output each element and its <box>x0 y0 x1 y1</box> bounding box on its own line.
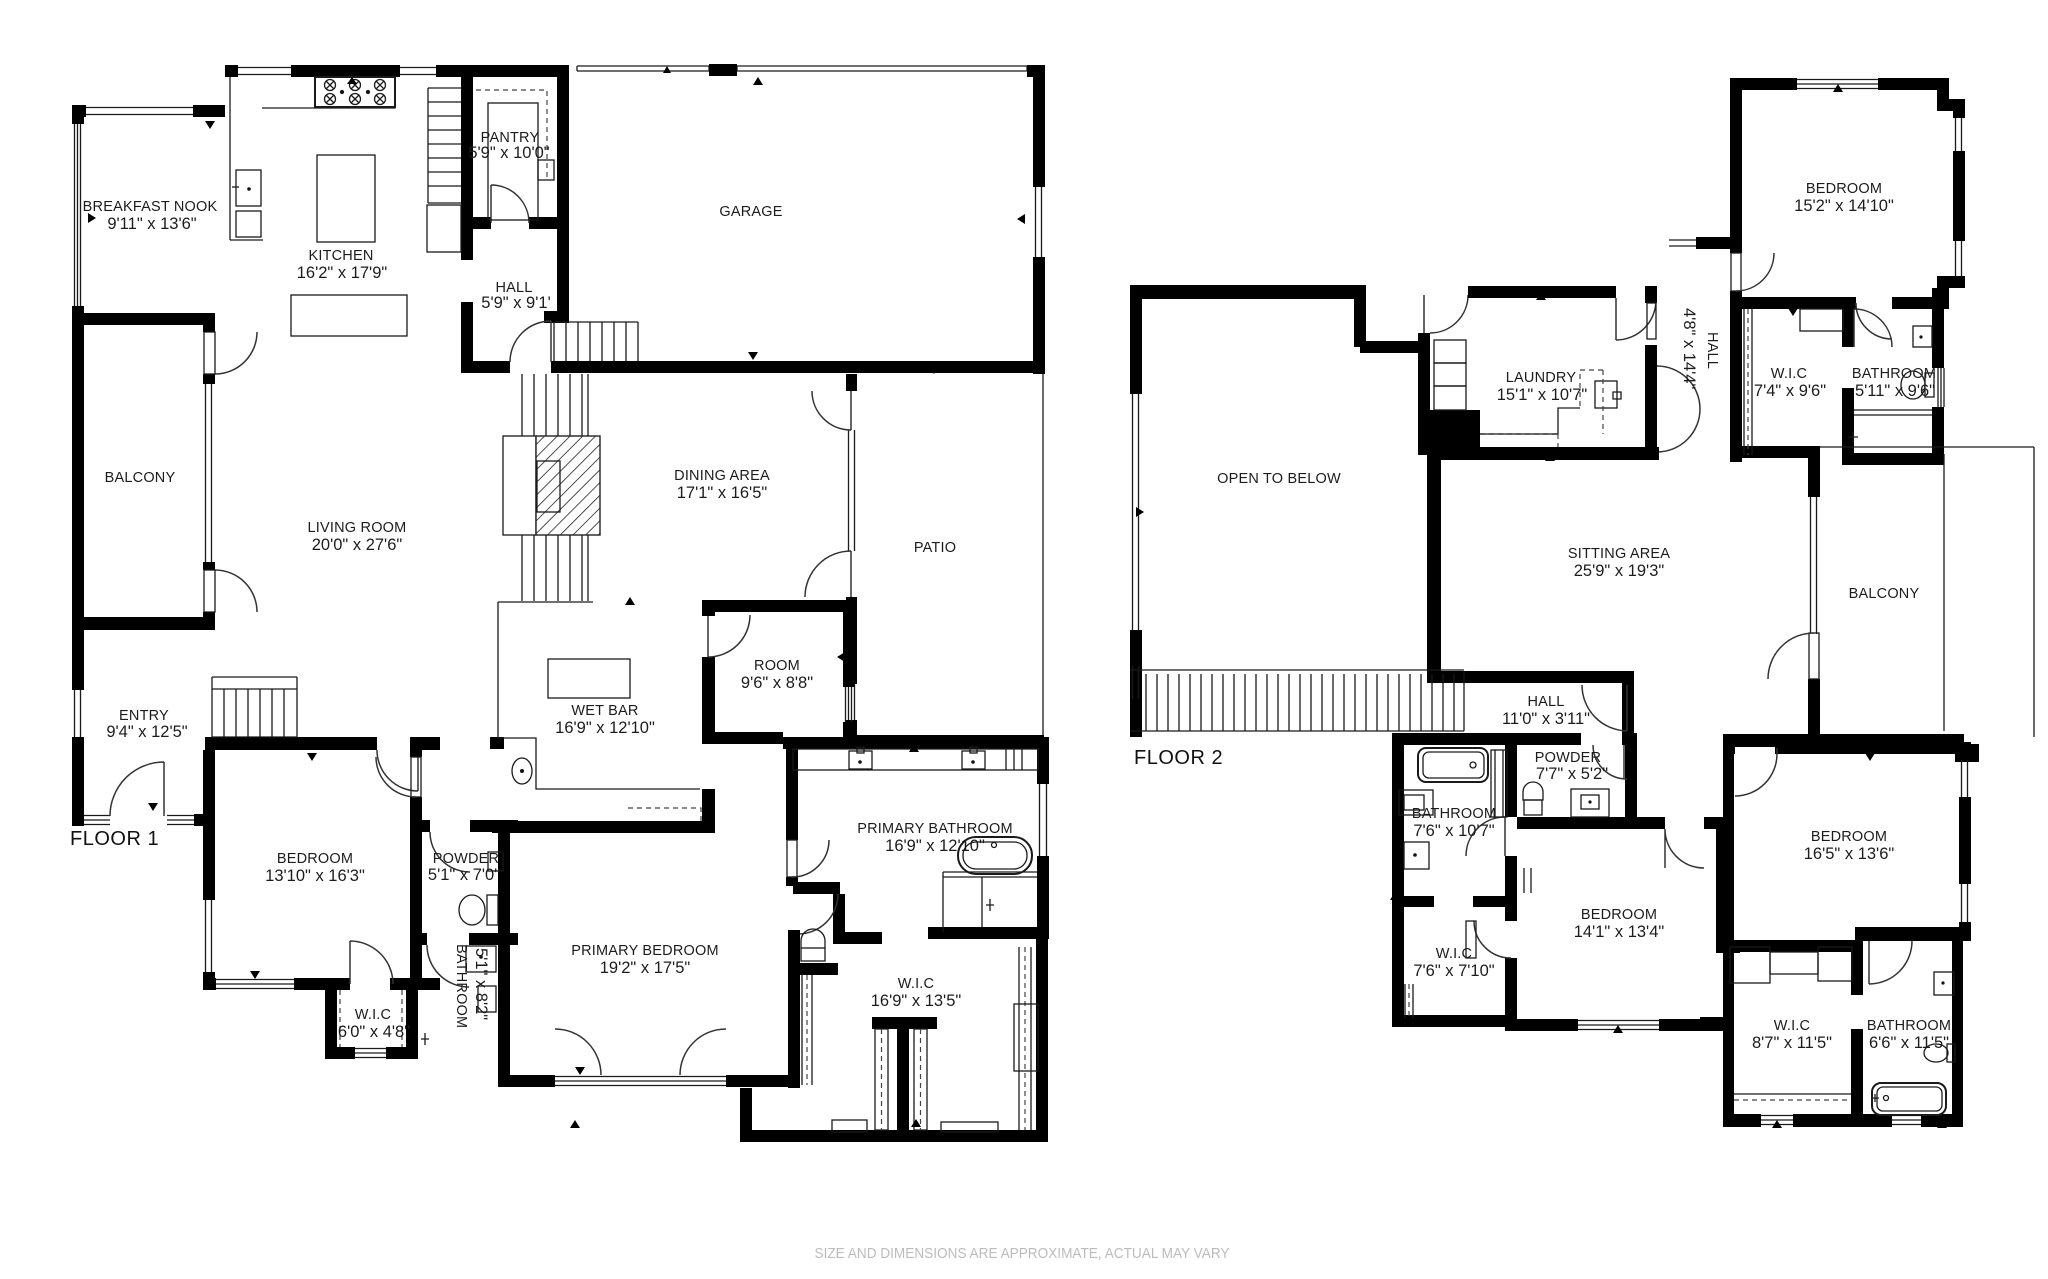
svg-text:4'8" x 14'4": 4'8" x 14'4" <box>1680 308 1698 389</box>
svg-text:W.I.C: W.I.C <box>1436 946 1472 962</box>
svg-text:6'0" x 4'8": 6'0" x 4'8" <box>338 1023 410 1041</box>
svg-text:SIZE AND DIMENSIONS ARE APPROX: SIZE AND DIMENSIONS ARE APPROXIMATE, ACT… <box>815 1245 1230 1262</box>
svg-text:19'2" x 17'5": 19'2" x 17'5" <box>600 959 691 977</box>
svg-text:8'7" x 11'5": 8'7" x 11'5" <box>1752 1034 1832 1052</box>
svg-text:BALCONY: BALCONY <box>1849 586 1920 602</box>
svg-text:6'6" x 11'5": 6'6" x 11'5" <box>1869 1034 1949 1052</box>
svg-text:16'9" x 12'10": 16'9" x 12'10" <box>885 837 985 855</box>
svg-text:7'7" x 5'2": 7'7" x 5'2" <box>1536 765 1608 783</box>
svg-text:OPEN TO BELOW: OPEN TO BELOW <box>1217 471 1341 487</box>
svg-text:W.I.C: W.I.C <box>1774 1018 1810 1034</box>
svg-text:W.I.C: W.I.C <box>355 1007 391 1023</box>
svg-text:PRIMARY BATHROOM: PRIMARY BATHROOM <box>857 821 1012 837</box>
svg-text:5'11" x 9'6": 5'11" x 9'6" <box>1855 382 1935 400</box>
svg-text:5'9" x 9'1': 5'9" x 9'1' <box>481 294 550 312</box>
svg-text:HALL: HALL <box>1704 332 1720 369</box>
svg-text:9'6" x 8'8": 9'6" x 8'8" <box>741 674 813 692</box>
svg-text:9'11" x 13'6": 9'11" x 13'6" <box>107 215 196 233</box>
svg-text:BATHROOM: BATHROOM <box>1412 806 1496 822</box>
svg-text:ROOM: ROOM <box>754 658 800 674</box>
svg-text:HALL: HALL <box>1527 694 1564 710</box>
svg-text:17'1" x 16'5": 17'1" x 16'5" <box>677 484 768 502</box>
svg-text:16'9" x 13'5": 16'9" x 13'5" <box>871 992 962 1010</box>
svg-text:5'1" x 7'0": 5'1" x 7'0" <box>428 866 500 884</box>
svg-text:15'2" x 14'10": 15'2" x 14'10" <box>1794 197 1894 215</box>
svg-text:BATHROOM: BATHROOM <box>1852 366 1936 382</box>
svg-text:20'0" x 27'6": 20'0" x 27'6" <box>312 536 403 554</box>
svg-text:15'1" x 10'7": 15'1" x 10'7" <box>1497 386 1588 404</box>
svg-text:SITTING AREA: SITTING AREA <box>1568 546 1670 562</box>
svg-text:16'2" x 17'9": 16'2" x 17'9" <box>297 264 388 282</box>
svg-text:GARAGE: GARAGE <box>719 204 782 220</box>
svg-text:W.I.C: W.I.C <box>1771 366 1807 382</box>
svg-text:16'5" x 13'6": 16'5" x 13'6" <box>1804 845 1895 863</box>
svg-text:DINING AREA: DINING AREA <box>674 468 770 484</box>
svg-text:FLOOR 1: FLOOR 1 <box>70 828 159 850</box>
svg-text:16'9" x 12'10": 16'9" x 12'10" <box>555 719 655 737</box>
svg-text:BEDROOM: BEDROOM <box>1806 181 1882 197</box>
svg-text:7'6" x 7'10": 7'6" x 7'10" <box>1413 962 1494 980</box>
svg-text:BEDROOM: BEDROOM <box>277 851 353 867</box>
svg-text:BEDROOM: BEDROOM <box>1811 829 1887 845</box>
svg-text:W.I.C: W.I.C <box>898 976 934 992</box>
svg-text:BATHROOM: BATHROOM <box>453 944 469 1028</box>
svg-text:LAUNDRY: LAUNDRY <box>1506 370 1577 386</box>
svg-text:ENTRY: ENTRY <box>119 708 169 724</box>
svg-text:25'9" x 19'3": 25'9" x 19'3" <box>1574 562 1665 580</box>
svg-text:PRIMARY BEDROOM: PRIMARY BEDROOM <box>571 943 719 959</box>
svg-text:FLOOR 2: FLOOR 2 <box>1134 747 1223 769</box>
svg-text:BALCONY: BALCONY <box>105 470 176 486</box>
svg-text:WET BAR: WET BAR <box>571 703 638 719</box>
svg-text:KITCHEN: KITCHEN <box>308 248 373 264</box>
svg-text:5'9" x 10'0": 5'9" x 10'0" <box>468 144 549 162</box>
svg-text:BATHROOM: BATHROOM <box>1867 1018 1951 1034</box>
svg-text:5'1" x 8'2": 5'1" x 8'2" <box>472 948 490 1020</box>
svg-text:7'6" x 10'7": 7'6" x 10'7" <box>1413 822 1494 840</box>
svg-text:LIVING ROOM: LIVING ROOM <box>308 520 407 536</box>
svg-text:BEDROOM: BEDROOM <box>1581 907 1657 923</box>
svg-text:PATIO: PATIO <box>914 540 956 556</box>
svg-text:9'4" x 12'5": 9'4" x 12'5" <box>106 723 187 741</box>
svg-text:13'10" x 16'3": 13'10" x 16'3" <box>265 867 365 885</box>
svg-text:POWDER: POWDER <box>1535 750 1601 766</box>
svg-text:BREAKFAST NOOK: BREAKFAST NOOK <box>83 199 218 215</box>
svg-text:POWDER: POWDER <box>433 851 499 867</box>
svg-text:7'4" x 9'6": 7'4" x 9'6" <box>1754 382 1826 400</box>
svg-text:14'1" x 13'4": 14'1" x 13'4" <box>1574 923 1665 941</box>
svg-text:11'0" x 3'11": 11'0" x 3'11" <box>1502 710 1590 728</box>
